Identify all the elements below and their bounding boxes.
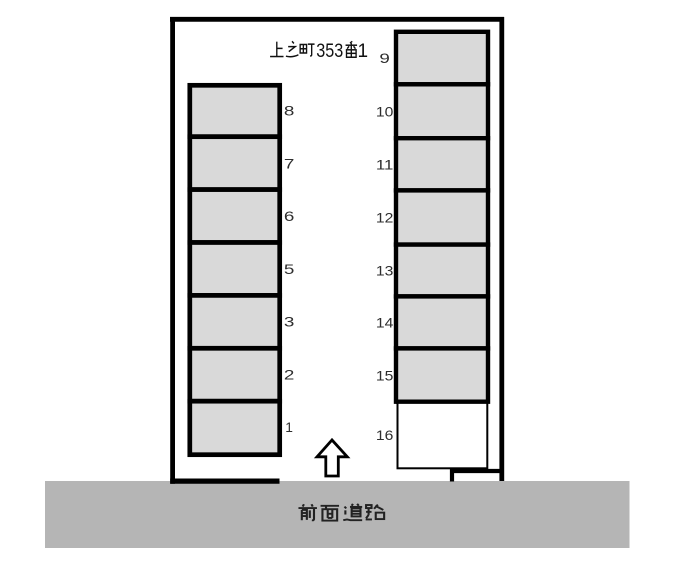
svg-text:13: 13 — [376, 264, 394, 279]
svg-text:14: 14 — [376, 316, 394, 331]
svg-text:11: 11 — [376, 158, 394, 173]
svg-text:15: 15 — [376, 369, 394, 384]
svg-text:16: 16 — [376, 428, 394, 443]
svg-text:12: 12 — [376, 211, 394, 226]
svg-text:2: 2 — [284, 367, 295, 382]
svg-text:9: 9 — [379, 51, 390, 66]
svg-text:7: 7 — [284, 156, 295, 171]
svg-text:353: 353 — [316, 41, 343, 62]
svg-text:1: 1 — [358, 41, 369, 62]
svg-text:5: 5 — [284, 262, 295, 277]
svg-text:3: 3 — [284, 315, 295, 330]
svg-text:10: 10 — [376, 104, 394, 119]
svg-text:1: 1 — [285, 420, 293, 435]
svg-text:6: 6 — [284, 209, 295, 224]
svg-text:8: 8 — [284, 104, 295, 119]
